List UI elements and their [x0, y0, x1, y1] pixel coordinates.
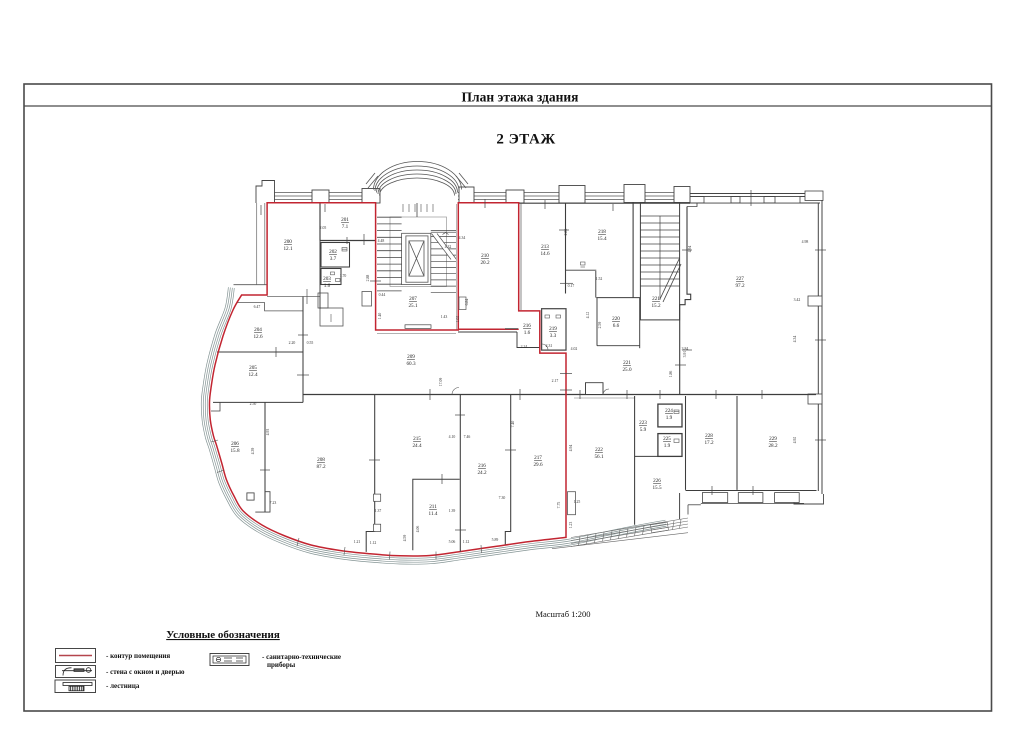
svg-text:3.84: 3.84	[682, 347, 689, 351]
svg-text:205: 205	[249, 365, 257, 371]
svg-text:2.88: 2.88	[366, 275, 370, 282]
svg-text:1.86: 1.86	[669, 371, 673, 378]
svg-text:200: 200	[284, 239, 292, 245]
svg-text:12.4: 12.4	[248, 372, 257, 378]
svg-text:15.8: 15.8	[230, 448, 239, 454]
svg-text:228: 228	[705, 433, 713, 439]
svg-text:1.37: 1.37	[375, 509, 382, 513]
svg-text:1.12: 1.12	[370, 541, 377, 545]
svg-text:206: 206	[231, 441, 239, 447]
svg-text:222: 222	[595, 447, 603, 453]
svg-text:216: 216	[478, 463, 486, 469]
svg-text:60.3: 60.3	[406, 361, 415, 367]
svg-text:226: 226	[653, 478, 661, 484]
svg-text:Условные обозначения: Условные обозначения	[166, 629, 280, 641]
svg-text:4.48: 4.48	[378, 239, 385, 243]
svg-text:4.34: 4.34	[793, 336, 797, 343]
svg-text:20.2: 20.2	[480, 260, 489, 266]
svg-text:4.59: 4.59	[403, 535, 407, 542]
svg-text:0.55: 0.55	[307, 341, 314, 345]
svg-text:209: 209	[407, 354, 415, 360]
svg-text:4.12: 4.12	[586, 312, 590, 319]
svg-text:1.23: 1.23	[569, 522, 573, 529]
svg-text:2.50: 2.50	[250, 402, 257, 406]
svg-text:207: 207	[409, 296, 417, 302]
svg-text:2.17: 2.17	[552, 379, 559, 383]
svg-text:201: 201	[341, 217, 349, 223]
svg-text:211: 211	[429, 504, 437, 510]
svg-text:7.1: 7.1	[342, 224, 349, 230]
svg-text:24.2: 24.2	[477, 470, 486, 476]
svg-text:25.0: 25.0	[622, 367, 631, 373]
svg-text:28.2: 28.2	[768, 443, 777, 449]
svg-text:56.1: 56.1	[594, 454, 603, 460]
svg-text:- стена с окном и дверью: - стена с окном и дверью	[106, 668, 185, 676]
svg-text:210: 210	[481, 253, 489, 259]
svg-text:225: 225	[663, 436, 671, 442]
svg-text:3.91: 3.91	[683, 351, 687, 358]
svg-text:1.12: 1.12	[463, 540, 470, 544]
svg-text:приборы: приборы	[267, 661, 296, 669]
svg-text:1.6: 1.6	[324, 283, 331, 289]
svg-text:221: 221	[623, 360, 631, 366]
svg-text:227: 227	[736, 276, 744, 282]
svg-text:216: 216	[523, 323, 531, 329]
svg-text:4.92: 4.92	[793, 437, 797, 444]
svg-text:97.2: 97.2	[735, 283, 744, 289]
svg-text:7.30: 7.30	[499, 496, 506, 500]
svg-text:4.32: 4.32	[445, 245, 452, 249]
svg-text:17.2: 17.2	[704, 440, 713, 446]
svg-text:229: 229	[769, 436, 777, 442]
svg-text:203: 203	[323, 276, 331, 282]
svg-text:15.4: 15.4	[597, 236, 606, 242]
svg-text:4.93: 4.93	[266, 429, 270, 436]
svg-text:3.3: 3.3	[550, 333, 557, 339]
svg-text:1.70: 1.70	[340, 274, 347, 278]
svg-text:4.94: 4.94	[688, 246, 692, 253]
svg-text:24.4: 24.4	[412, 443, 421, 449]
svg-text:2.86: 2.86	[564, 229, 568, 236]
svg-text:1.6: 1.6	[524, 330, 531, 336]
svg-text:213: 213	[541, 244, 549, 250]
svg-text:15.5: 15.5	[652, 485, 661, 491]
svg-text:219: 219	[549, 326, 557, 332]
svg-text:2.31: 2.31	[546, 344, 553, 348]
svg-text:4.10: 4.10	[449, 435, 456, 439]
svg-text:3.7: 3.7	[330, 256, 337, 262]
svg-text:15.2: 15.2	[651, 303, 660, 309]
svg-text:2 ЭТАЖ: 2 ЭТАЖ	[496, 132, 555, 148]
svg-text:1.9: 1.9	[664, 443, 671, 449]
svg-text:217: 217	[534, 455, 542, 461]
svg-text:1.02: 1.02	[456, 316, 460, 323]
svg-text:25.1: 25.1	[408, 303, 417, 309]
svg-text:5.06: 5.06	[449, 540, 456, 544]
svg-text:7.75: 7.75	[557, 502, 561, 509]
svg-text:2.59: 2.59	[598, 322, 602, 329]
svg-text:1.52: 1.52	[596, 277, 603, 281]
svg-text:1.9: 1.9	[666, 415, 673, 421]
svg-text:223: 223	[639, 420, 647, 426]
svg-text:5.89: 5.89	[492, 538, 499, 542]
svg-text:1.25: 1.25	[574, 500, 581, 504]
svg-text:6.6: 6.6	[613, 323, 620, 329]
svg-text:87.2: 87.2	[316, 464, 325, 470]
svg-text:5.9: 5.9	[640, 427, 647, 433]
svg-text:215: 215	[413, 436, 421, 442]
svg-text:202: 202	[329, 249, 337, 255]
svg-text:- контур помещения: - контур помещения	[106, 652, 170, 660]
svg-text:План этажа здания: План этажа здания	[462, 90, 579, 105]
svg-text:1.39: 1.39	[449, 509, 456, 513]
svg-text:Масштаб 1:200: Масштаб 1:200	[535, 609, 590, 619]
svg-text:- лестница: - лестница	[106, 682, 140, 690]
svg-text:4.94: 4.94	[569, 445, 573, 452]
svg-text:220: 220	[612, 316, 620, 322]
svg-text:12.6: 12.6	[253, 334, 262, 340]
svg-text:4.06: 4.06	[416, 526, 420, 533]
svg-text:2.20: 2.20	[289, 341, 296, 345]
svg-text:14.6: 14.6	[540, 251, 549, 257]
svg-text:7.23: 7.23	[270, 501, 277, 505]
svg-text:1.21: 1.21	[354, 540, 361, 544]
svg-text:0.44: 0.44	[379, 293, 386, 297]
svg-text:4.02: 4.02	[571, 347, 578, 351]
svg-text:6.47: 6.47	[254, 305, 261, 309]
svg-text:204: 204	[254, 327, 262, 333]
svg-text:12.1: 12.1	[283, 246, 292, 252]
svg-text:1.43: 1.43	[441, 315, 448, 319]
svg-text:2.24: 2.24	[521, 345, 528, 349]
svg-text:- санитарно-технические: - санитарно-технические	[262, 653, 341, 661]
svg-text:4.98: 4.98	[802, 240, 809, 244]
svg-text:208: 208	[317, 457, 325, 463]
svg-text:221: 221	[652, 296, 660, 302]
svg-text:3.42: 3.42	[794, 298, 801, 302]
svg-text:17.09: 17.09	[439, 378, 443, 387]
svg-text:7.40: 7.40	[511, 421, 515, 428]
svg-text:224: 224	[665, 408, 673, 414]
svg-text:4.39: 4.39	[251, 448, 255, 455]
svg-text:1.40: 1.40	[378, 313, 382, 320]
svg-text:29.6: 29.6	[533, 462, 542, 468]
svg-text:11.4: 11.4	[429, 511, 438, 517]
svg-text:4.34: 4.34	[459, 236, 466, 240]
svg-text:0.17: 0.17	[568, 284, 575, 288]
svg-text:7.46: 7.46	[464, 435, 471, 439]
svg-text:6.84: 6.84	[465, 299, 469, 306]
svg-text:218: 218	[598, 229, 606, 235]
svg-text:2.05: 2.05	[320, 226, 327, 230]
